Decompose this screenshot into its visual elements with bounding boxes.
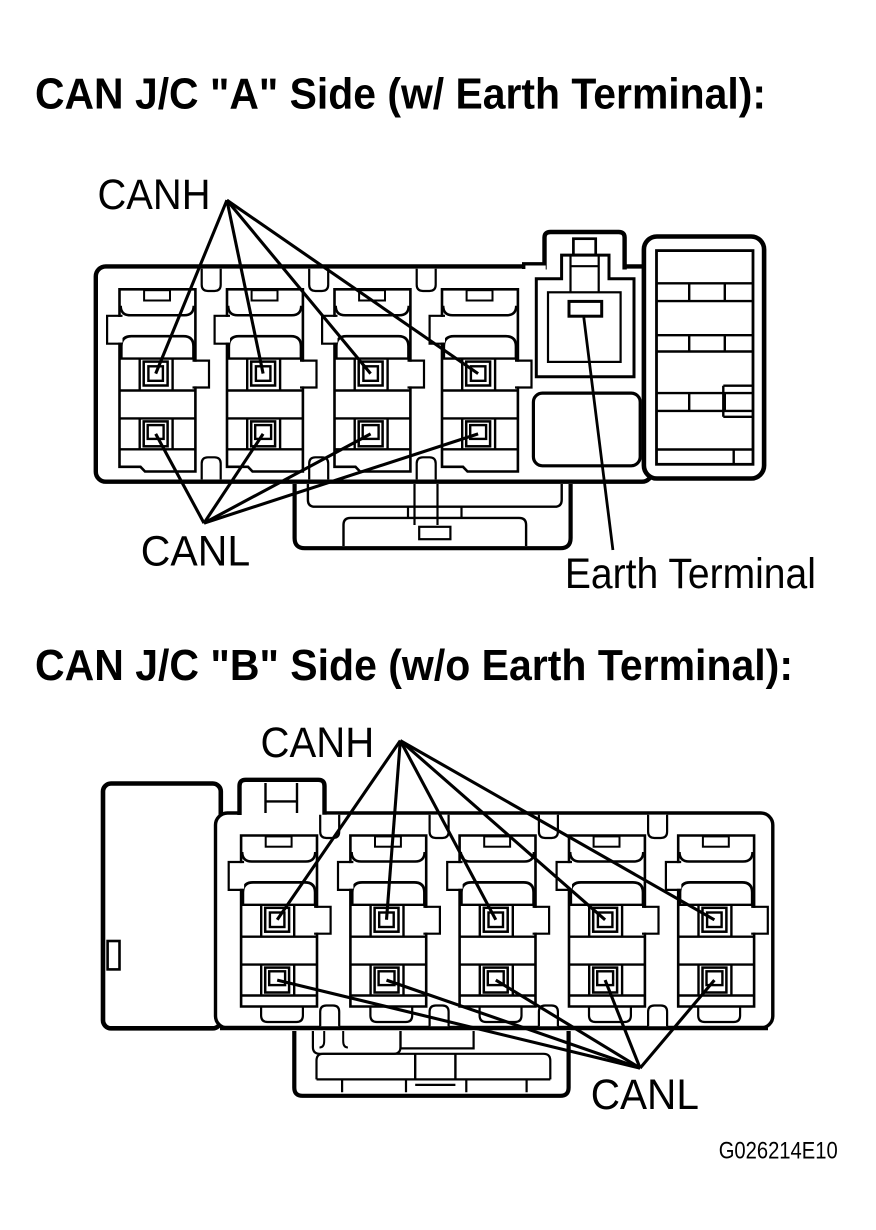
svg-text:CAN J/C "A" Side (w/ Earth Ter: CAN J/C "A" Side (w/ Earth Terminal): [35,70,766,119]
svg-text:CANH: CANH [261,719,375,767]
svg-text:CAN J/C "B" Side (w/o Earth Te: CAN J/C "B" Side (w/o Earth Terminal): [35,641,793,690]
svg-text:CANL: CANL [591,1071,699,1119]
svg-text:Earth Terminal: Earth Terminal [565,550,816,598]
svg-text:CANH: CANH [98,171,211,219]
svg-text:G026214E10: G026214E10 [719,1138,838,1165]
svg-text:CANL: CANL [141,528,250,576]
